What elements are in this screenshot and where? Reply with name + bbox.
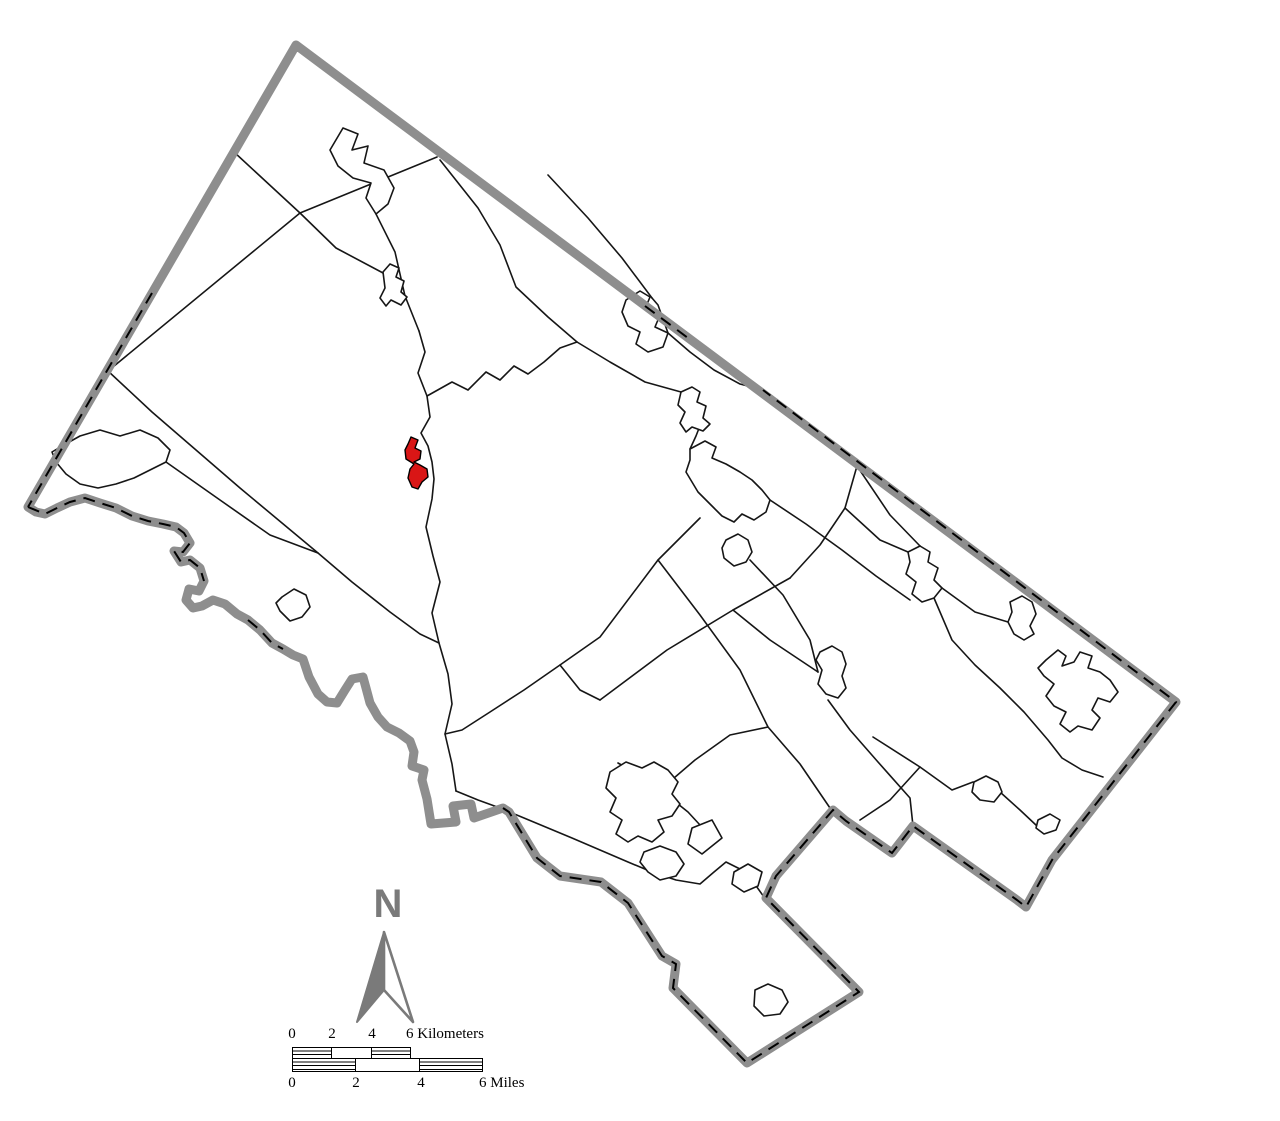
- scale-label-kilometers: 6 Kilometers: [406, 1026, 484, 1043]
- scale-tick-km-0: 0: [288, 1026, 296, 1043]
- county-map: [0, 0, 1280, 1121]
- map-canvas: N 0 2 4 6 Kilometers 0 2 4 6 Miles: [0, 0, 1280, 1121]
- county-area: [28, 45, 1176, 1063]
- scale-segment: [355, 1058, 419, 1072]
- scale-tick-mi-0: 0: [288, 1075, 296, 1092]
- scale-segment: [419, 1058, 483, 1072]
- north-arrow-icon: [357, 932, 384, 1022]
- scale-tick-mi-2: 2: [352, 1075, 360, 1092]
- scale-tick-km-4: 4: [368, 1026, 376, 1043]
- scale-segment: [292, 1058, 356, 1072]
- scale-tick-km-2: 2: [328, 1026, 336, 1043]
- scale-label-miles: 6 Miles: [479, 1075, 524, 1092]
- north-arrow-label: N: [366, 884, 410, 924]
- scale-bar-miles: [292, 1058, 485, 1072]
- scale-tick-mi-4: 4: [417, 1075, 425, 1092]
- north-arrow-icon: [384, 932, 413, 1022]
